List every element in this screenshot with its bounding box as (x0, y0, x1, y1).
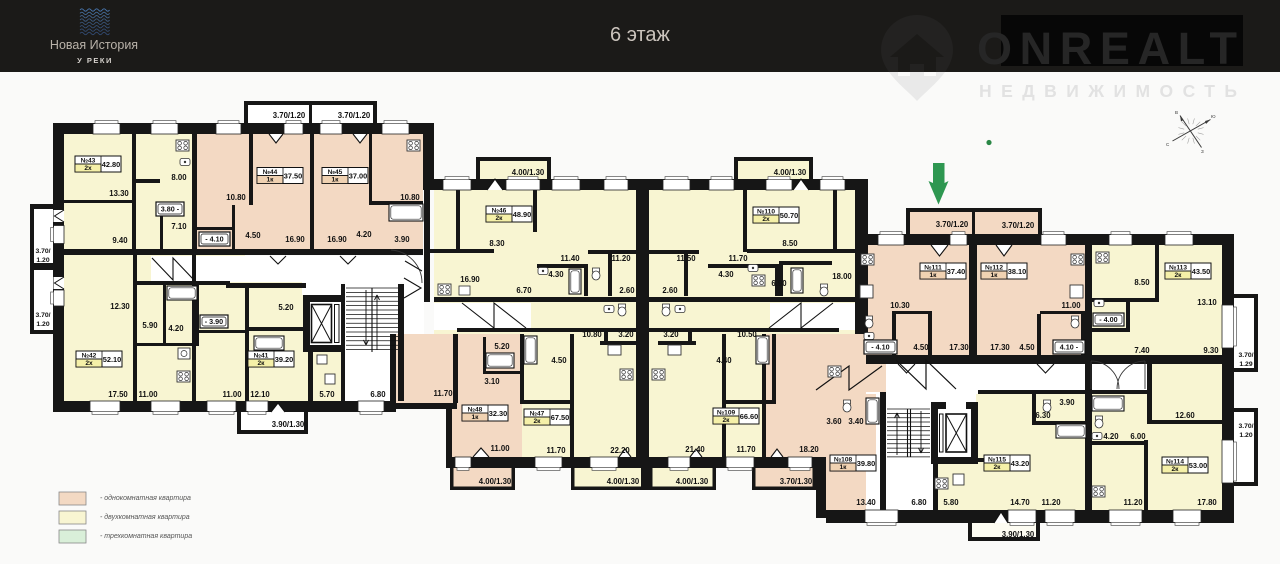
svg-text:2х: 2х (84, 165, 92, 172)
svg-text:5.70: 5.70 (319, 390, 335, 399)
svg-text:10.80: 10.80 (582, 330, 602, 339)
svg-text:1к: 1к (267, 177, 275, 184)
svg-text:2х: 2х (85, 360, 93, 367)
svg-text:2к: 2к (258, 360, 266, 367)
svg-text:№115: №115 (988, 457, 1006, 464)
svg-text:16.90: 16.90 (327, 235, 347, 244)
svg-text:53.00: 53.00 (1189, 461, 1208, 470)
svg-text:3.70/1.20: 3.70/1.20 (1002, 221, 1035, 230)
svg-text:В: В (1175, 110, 1178, 115)
svg-text:43.20: 43.20 (1011, 459, 1030, 468)
svg-text:9.40: 9.40 (112, 236, 128, 245)
svg-text:37.00: 37.00 (349, 171, 368, 180)
svg-text:2к: 2к (994, 464, 1002, 471)
svg-text:1.20: 1.20 (36, 321, 49, 328)
svg-text:3.70/1.20: 3.70/1.20 (936, 220, 969, 229)
svg-text:6.70: 6.70 (516, 286, 532, 295)
svg-text:8.30: 8.30 (489, 239, 505, 248)
svg-text:38.10: 38.10 (1008, 267, 1027, 276)
svg-text:1к: 1к (991, 272, 999, 279)
svg-text:1к: 1к (930, 272, 938, 279)
svg-text:66.60: 66.60 (740, 412, 759, 421)
svg-text:14.70: 14.70 (1010, 498, 1030, 507)
svg-text:52.10: 52.10 (103, 355, 122, 364)
svg-text:4.00/1.30: 4.00/1.30 (607, 477, 640, 486)
svg-text:22.20: 22.20 (610, 446, 630, 455)
svg-text:№111: №111 (924, 265, 942, 272)
svg-text:12.30: 12.30 (110, 302, 130, 311)
svg-text:6.80: 6.80 (370, 390, 386, 399)
svg-text:6.00: 6.00 (1130, 432, 1146, 441)
svg-text:10.50: 10.50 (737, 330, 757, 339)
svg-text:42.80: 42.80 (102, 160, 121, 169)
svg-text:1.29: 1.29 (1239, 361, 1252, 368)
svg-text:7.10: 7.10 (171, 222, 187, 231)
svg-text:- двухкомнатная квартира: - двухкомнатная квартира (100, 513, 190, 521)
svg-text:№46: №46 (492, 208, 507, 215)
svg-text:2к: 2к (496, 215, 504, 222)
svg-text:3.80 -: 3.80 - (161, 205, 180, 214)
svg-text:2.60: 2.60 (662, 286, 678, 295)
svg-text:1к: 1к (332, 177, 340, 184)
svg-text:№113: №113 (1169, 265, 1187, 272)
svg-text:3.70/: 3.70/ (1238, 352, 1253, 359)
svg-text:- 3.90: - 3.90 (205, 317, 223, 326)
svg-text:№48: №48 (468, 407, 483, 414)
svg-text:6.90: 6.90 (771, 279, 787, 288)
svg-text:4.50: 4.50 (551, 356, 567, 365)
svg-text:17.50: 17.50 (108, 390, 128, 399)
svg-text:9.30: 9.30 (1203, 346, 1219, 355)
svg-text:5.20: 5.20 (494, 342, 510, 351)
svg-text:№42: №42 (82, 353, 97, 360)
svg-text:3.90/1.30: 3.90/1.30 (272, 420, 305, 429)
svg-text:3.70/: 3.70/ (35, 248, 50, 255)
svg-text:18.20: 18.20 (799, 445, 819, 454)
svg-text:11.20: 11.20 (1123, 498, 1143, 507)
svg-text:4.20: 4.20 (168, 324, 184, 333)
svg-text:39.20: 39.20 (275, 355, 294, 364)
svg-text:Ю: Ю (1211, 114, 1216, 119)
svg-text:3.90/1.30: 3.90/1.30 (1002, 530, 1035, 539)
svg-text:11.70: 11.70 (736, 445, 756, 454)
svg-text:39.80: 39.80 (857, 459, 876, 468)
svg-text:- трехкомнатная квартира: - трехкомнатная квартира (100, 533, 192, 540)
svg-text:№114: №114 (1166, 459, 1184, 466)
svg-text:11.70: 11.70 (433, 389, 453, 398)
svg-text:4.20: 4.20 (1103, 432, 1119, 441)
svg-text:48.90: 48.90 (513, 210, 532, 219)
svg-text:3.70/: 3.70/ (1238, 423, 1253, 430)
svg-text:11.40: 11.40 (560, 254, 580, 263)
svg-text:№43: №43 (81, 158, 96, 165)
svg-text:3.20: 3.20 (663, 330, 679, 339)
svg-text:З: З (1201, 149, 1204, 154)
svg-text:5.20: 5.20 (278, 303, 294, 312)
svg-text:3.70/1.20: 3.70/1.20 (338, 111, 371, 120)
svg-text:67.50: 67.50 (551, 413, 570, 422)
svg-text:3.90: 3.90 (394, 235, 410, 244)
svg-text:1к: 1к (840, 464, 848, 471)
svg-text:17.30: 17.30 (990, 343, 1010, 352)
svg-text:- однокомнатная квартира: - однокомнатная квартира (100, 494, 191, 502)
svg-text:3.70/: 3.70/ (35, 312, 50, 319)
svg-text:13.40: 13.40 (856, 498, 876, 507)
svg-text:№44: №44 (263, 169, 278, 176)
svg-text:2.60: 2.60 (619, 286, 635, 295)
svg-text:11.50: 11.50 (676, 254, 696, 263)
svg-text:13.30: 13.30 (109, 189, 129, 198)
svg-text:№108: №108 (834, 457, 853, 464)
svg-text:11.00: 11.00 (222, 390, 242, 399)
svg-text:- 4.10: - 4.10 (205, 235, 223, 244)
svg-text:6 этаж: 6 этаж (610, 24, 671, 46)
svg-text:4.30: 4.30 (548, 270, 564, 279)
svg-text:37.50: 37.50 (284, 171, 303, 180)
svg-text:4.00/1.30: 4.00/1.30 (774, 168, 807, 177)
svg-text:11.70: 11.70 (546, 446, 566, 455)
svg-text:3.90: 3.90 (1059, 398, 1075, 407)
svg-text:№45: №45 (328, 169, 343, 176)
svg-text:11.00: 11.00 (1061, 301, 1081, 310)
svg-text:5.90: 5.90 (142, 321, 158, 330)
svg-text:43.50: 43.50 (1192, 267, 1211, 276)
svg-text:8.50: 8.50 (782, 239, 798, 248)
svg-text:3.10: 3.10 (484, 377, 500, 386)
svg-text:11.20: 11.20 (1041, 498, 1061, 507)
svg-text:12.60: 12.60 (1175, 411, 1195, 420)
svg-text:У РЕКИ: У РЕКИ (77, 56, 113, 65)
svg-text:4.10 -: 4.10 - (1060, 343, 1079, 352)
svg-text:16.90: 16.90 (460, 275, 480, 284)
svg-text:37.40: 37.40 (947, 267, 966, 276)
svg-text:№109: №109 (717, 410, 736, 417)
svg-text:10.30: 10.30 (890, 301, 910, 310)
svg-text:5.80: 5.80 (943, 498, 959, 507)
svg-text:3.70/1.30: 3.70/1.30 (780, 477, 813, 486)
svg-text:4.00/1.30: 4.00/1.30 (512, 168, 545, 177)
svg-text:4.40: 4.40 (716, 356, 732, 365)
svg-text:- 4.10: - 4.10 (871, 343, 889, 352)
svg-text:11.00: 11.00 (490, 444, 510, 453)
svg-text:50.70: 50.70 (780, 211, 799, 220)
svg-text:4.00/1.30: 4.00/1.30 (676, 477, 709, 486)
svg-text:7.40: 7.40 (1134, 346, 1150, 355)
svg-text:2к: 2к (1172, 466, 1180, 473)
svg-text:1.20: 1.20 (36, 257, 49, 264)
svg-text:6.30: 6.30 (1035, 411, 1051, 420)
svg-text:32.30: 32.30 (489, 409, 508, 418)
svg-text:№41: №41 (254, 353, 269, 360)
svg-text:4.50: 4.50 (1019, 343, 1035, 352)
svg-text:4.30: 4.30 (718, 270, 734, 279)
svg-text:2к: 2к (534, 418, 542, 425)
svg-text:2к: 2к (1175, 272, 1183, 279)
svg-text:№47: №47 (530, 411, 545, 418)
svg-text:3.40: 3.40 (848, 417, 864, 426)
svg-text:4.50: 4.50 (913, 343, 929, 352)
svg-text:3.70/1.20: 3.70/1.20 (273, 111, 306, 120)
svg-text:18.00: 18.00 (832, 272, 852, 281)
svg-text:1к: 1к (472, 414, 480, 421)
svg-text:10.80: 10.80 (400, 193, 420, 202)
svg-text:10.80: 10.80 (226, 193, 246, 202)
svg-text:- 4.00: - 4.00 (1099, 315, 1117, 324)
svg-text:21.40: 21.40 (685, 445, 705, 454)
svg-text:Новая История: Новая История (50, 38, 138, 52)
svg-text:4.20: 4.20 (356, 230, 372, 239)
svg-text:8.00: 8.00 (171, 173, 187, 182)
svg-text:№112: №112 (985, 265, 1003, 272)
svg-text:1.20: 1.20 (1239, 432, 1252, 439)
svg-text:4.00/1.30: 4.00/1.30 (479, 477, 512, 486)
svg-text:11.00: 11.00 (138, 390, 158, 399)
svg-text:16.90: 16.90 (285, 235, 305, 244)
svg-text:3.20: 3.20 (618, 330, 634, 339)
svg-text:17.30: 17.30 (949, 343, 969, 352)
svg-text:2к: 2к (723, 417, 731, 424)
svg-text:3.60: 3.60 (826, 417, 842, 426)
svg-text:13.10: 13.10 (1197, 298, 1217, 307)
svg-text:11.20: 11.20 (611, 254, 631, 263)
svg-text:11.70: 11.70 (728, 254, 748, 263)
svg-text:6.80: 6.80 (911, 498, 927, 507)
svg-text:8.50: 8.50 (1134, 278, 1150, 287)
svg-text:4.50: 4.50 (245, 231, 261, 240)
svg-text:№110: №110 (757, 209, 775, 216)
svg-text:12.10: 12.10 (250, 390, 270, 399)
svg-text:2х: 2х (762, 216, 770, 223)
svg-text:17.80: 17.80 (1197, 498, 1217, 507)
